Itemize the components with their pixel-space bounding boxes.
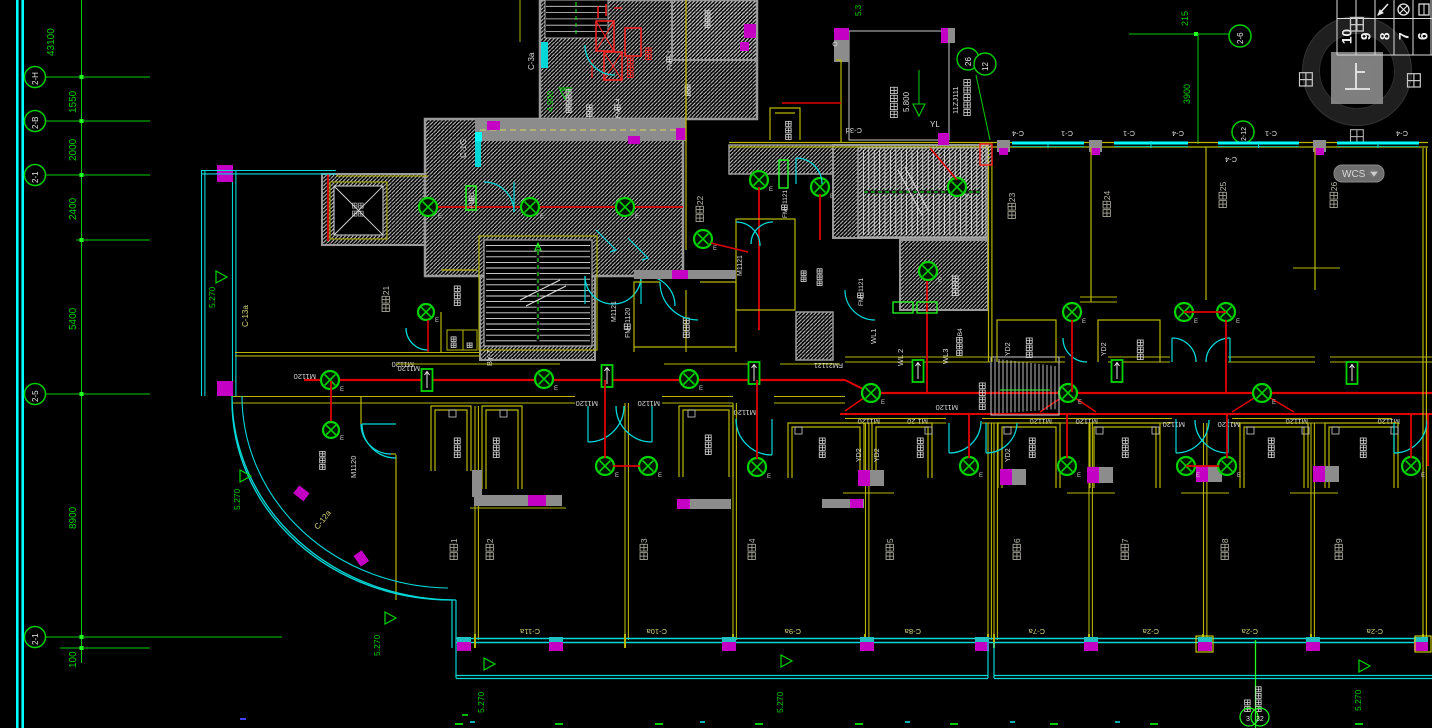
svg-text:E: E (938, 278, 942, 284)
svg-text:4: 4 (747, 538, 757, 543)
svg-text:E: E (767, 474, 771, 480)
svg-text:12: 12 (981, 62, 990, 71)
svg-text:23: 23 (1007, 192, 1017, 202)
svg-text:22: 22 (695, 195, 705, 205)
svg-text:5: 5 (885, 538, 895, 543)
svg-text:E: E (340, 436, 344, 442)
svg-text:5.270: 5.270 (232, 488, 242, 510)
svg-text:2-B: 2-B (31, 117, 40, 129)
svg-text:E: E (615, 473, 619, 479)
svg-text:E: E (713, 246, 717, 252)
svg-text:3: 3 (639, 538, 649, 543)
svg-text:C-4: C-4 (1172, 129, 1184, 138)
svg-text:E: E (540, 214, 544, 220)
svg-text:E: E (635, 214, 639, 220)
svg-text:M1120: M1120 (576, 399, 598, 408)
svg-text:WL 2: WL 2 (896, 349, 905, 366)
svg-text:C-1: C-1 (1061, 129, 1073, 138)
svg-text:M1120: M1120 (1218, 420, 1240, 429)
svg-text:M1120: M1120 (1030, 417, 1052, 426)
svg-text:M1121: M1121 (611, 301, 618, 322)
svg-text:215: 215 (1180, 11, 1190, 26)
svg-text:C-8a: C-8a (904, 627, 921, 636)
svg-text:9: 9 (1334, 538, 1344, 543)
svg-text:2-12: 2-12 (1241, 127, 1248, 141)
svg-text:C-7a: C-7a (1028, 627, 1045, 636)
svg-text:3: 3 (1246, 716, 1250, 723)
svg-text:2400: 2400 (68, 197, 79, 220)
svg-text:-4: -4 (615, 98, 622, 104)
svg-text:E: E (979, 473, 983, 479)
svg-text:M1120: M1120 (1076, 417, 1098, 426)
svg-text:YD2: YD2 (1005, 448, 1012, 462)
svg-text:C-1: C-1 (1265, 129, 1277, 138)
svg-text:E: E (658, 473, 662, 479)
svg-text:WL1: WL1 (869, 329, 878, 344)
svg-text:M1 20: M1 20 (907, 417, 928, 426)
svg-text:M1121: M1121 (737, 255, 744, 276)
svg-text:C-11a: C-11a (519, 627, 540, 636)
svg-text:7: 7 (1120, 538, 1130, 543)
svg-text:C-1: C-1 (1123, 129, 1135, 138)
svg-text:2-6: 2-6 (1236, 32, 1245, 44)
svg-text:8900: 8900 (68, 506, 79, 529)
svg-text:WL3: WL3 (941, 349, 950, 364)
svg-text:YL: YL (930, 120, 940, 129)
svg-text:9: 9 (1359, 32, 1374, 40)
svg-text:M1120: M1120 (1163, 420, 1185, 429)
svg-text:YD2: YD2 (856, 448, 863, 462)
svg-text:E: E (1077, 473, 1081, 479)
svg-text:C-3a: C-3a (527, 52, 536, 70)
svg-text:C-4: C-4 (1225, 155, 1237, 164)
svg-text:2000: 2000 (68, 138, 79, 161)
svg-text:E: E (967, 194, 971, 200)
svg-text:FM21121: FM21121 (814, 361, 843, 368)
svg-text:E: E (1236, 319, 1240, 325)
svg-text:E: E (699, 386, 703, 392)
svg-text:5.270: 5.270 (775, 691, 785, 713)
svg-text:5.800: 5.800 (902, 91, 911, 112)
svg-text:8: 8 (1378, 32, 1393, 40)
svg-text:YD2: YD2 (1005, 342, 1012, 356)
svg-text:M1120: M1120 (638, 399, 660, 408)
svg-text:M1120: M1120 (349, 456, 358, 478)
svg-text:C-13a: C-13a (241, 305, 250, 327)
svg-text:5.270: 5.270 (207, 286, 217, 308)
svg-text:E: E (1082, 319, 1086, 325)
svg-text:C-1G: C-1G (459, 139, 468, 158)
svg-text:1120: 1120 (625, 308, 632, 323)
svg-text:5.270: 5.270 (476, 691, 486, 713)
svg-text:1: 1 (449, 538, 459, 543)
svg-text:C-3d: C-3d (846, 126, 862, 135)
svg-text:E: E (1194, 319, 1198, 325)
svg-text:M1120: M1120 (1378, 417, 1400, 426)
svg-text:E: E (830, 194, 834, 200)
svg-text:6: 6 (1012, 538, 1022, 543)
svg-text:5400: 5400 (68, 307, 79, 330)
svg-text:E: E (1421, 473, 1425, 479)
svg-text:C-10a: C-10a (646, 627, 667, 636)
svg-text:M1120: M1120 (936, 403, 958, 412)
svg-text:2: 2 (485, 538, 495, 543)
svg-text:21: 21 (381, 285, 391, 295)
svg-text:26: 26 (964, 57, 973, 66)
svg-text:2-H: 2-H (31, 72, 40, 85)
svg-text:C-2a: C-2a (1366, 627, 1383, 636)
svg-text:E: E (769, 187, 773, 193)
svg-text:5.270: 5.270 (1353, 689, 1363, 711)
svg-text:E: E (1272, 400, 1276, 406)
svg-text:M1120: M1120 (398, 364, 420, 373)
svg-text:C-4: C-4 (1012, 129, 1024, 138)
svg-text:1121: 1121 (782, 190, 789, 204)
svg-text:E: E (554, 386, 558, 392)
svg-text:5.270: 5.270 (372, 634, 382, 656)
svg-text:M1120: M1120 (294, 372, 316, 381)
svg-text:B4: B4 (957, 328, 964, 336)
svg-text:7: 7 (1397, 32, 1412, 40)
svg-text:M1120: M1120 (734, 408, 756, 417)
svg-text:C-4: C-4 (1396, 129, 1408, 138)
svg-text:YD2: YD2 (1101, 342, 1108, 356)
svg-text:11ZJ111: 11ZJ111 (951, 86, 960, 114)
svg-text:5.3: 5.3 (854, 4, 863, 16)
svg-text:E: E (1237, 473, 1241, 479)
svg-text:2-1: 2-1 (31, 171, 40, 183)
svg-text:24: 24 (1102, 190, 1112, 200)
svg-text:E: E (1078, 400, 1082, 406)
svg-text:C-2a: C-2a (1142, 627, 1159, 636)
svg-text:4.900: 4.900 (545, 90, 555, 112)
svg-text:2-5: 2-5 (31, 390, 40, 402)
svg-text:8: 8 (1220, 538, 1230, 543)
svg-text:E: E (1196, 473, 1200, 479)
svg-text:25: 25 (1218, 181, 1228, 191)
svg-text:1121: 1121 (858, 278, 865, 292)
svg-text:3900: 3900 (1182, 84, 1192, 104)
svg-text:E: E (340, 387, 344, 393)
svg-text:E: E (881, 400, 885, 406)
svg-text:E: E (438, 214, 442, 220)
svg-text:E: E (435, 318, 439, 324)
svg-text:32: 32 (1256, 716, 1264, 723)
svg-text:6: 6 (1416, 32, 1431, 40)
svg-text:43100: 43100 (46, 28, 57, 56)
svg-text:C-2a: C-2a (1241, 627, 1258, 636)
svg-text:YD2: YD2 (874, 448, 881, 462)
svg-text:26: 26 (1329, 181, 1339, 191)
svg-text:2-1: 2-1 (31, 633, 40, 645)
svg-text:M1120: M1120 (1286, 417, 1308, 426)
svg-text:C-9a: C-9a (784, 627, 801, 636)
svg-text:1550: 1550 (68, 90, 79, 113)
svg-text:WCS: WCS (1342, 169, 1366, 180)
svg-text:100: 100 (68, 651, 79, 668)
